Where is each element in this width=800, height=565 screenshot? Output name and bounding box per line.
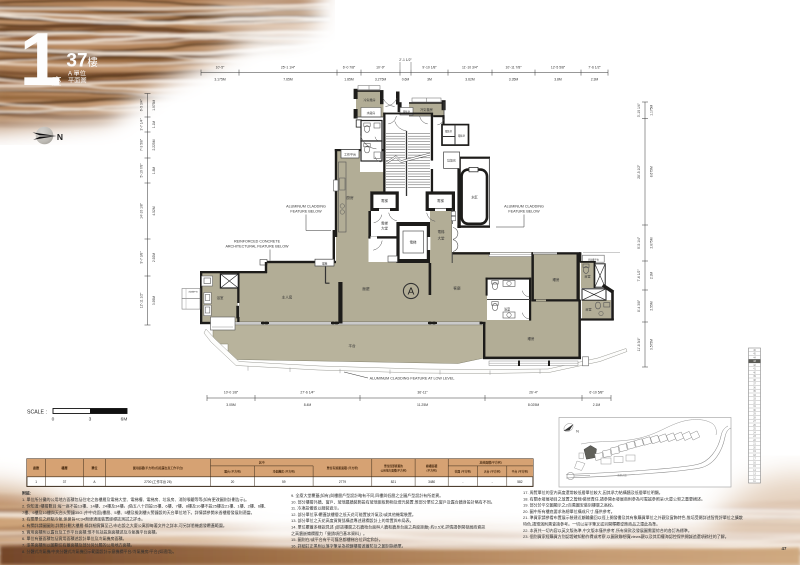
svg-text:2.875M: 2.875M bbox=[650, 237, 654, 248]
svg-text:3.575M: 3.575M bbox=[650, 339, 654, 350]
svg-text:3480: 3480 bbox=[428, 480, 435, 484]
svg-text:9'-5 1/4″: 9'-5 1/4″ bbox=[637, 236, 641, 249]
svg-text:A 單位: A 單位 bbox=[68, 70, 86, 78]
svg-text:1: 1 bbox=[20, 17, 62, 101]
svg-text:10'-5″: 10'-5″ bbox=[216, 65, 225, 69]
svg-text:SCALE :: SCALE : bbox=[27, 410, 47, 416]
svg-text:平台 (平方呎): 平台 (平方呎) bbox=[512, 470, 529, 474]
svg-text:11. 冷凍設備嵌以服裝遮示。: 11. 冷凍設備嵌以服裝遮示。 bbox=[291, 505, 341, 511]
svg-text:23. 個別買家經購買方別認證確知動作費或考察,以圖敦聯想寬: 23. 個別買家經購買方別認證確知動作費或考察,以圖敦聯想寬views觀以及其用… bbox=[523, 533, 729, 539]
svg-text:1.975M: 1.975M bbox=[152, 99, 156, 110]
svg-text:13. 部分單位之天花高度資質弧構造專述建欄設計上的常置與布: 13. 部分單位之天花高度資質弧構造專述建欄設計上的常置與布局表。 bbox=[291, 517, 414, 523]
svg-text:2700 (工作平台 26): 2700 (工作平台 26) bbox=[144, 479, 171, 484]
svg-text:單位局部遮蓋的: 單位局部遮蓋的 bbox=[384, 464, 403, 468]
svg-text:電梯: 電梯 bbox=[410, 240, 417, 245]
svg-text:平面圖: 平面圖 bbox=[68, 78, 87, 85]
svg-text:11'-8 3/4″: 11'-8 3/4″ bbox=[637, 337, 641, 351]
svg-text:7'-3 5/8″: 7'-3 5/8″ bbox=[140, 138, 144, 151]
svg-text:37: 37 bbox=[63, 480, 67, 484]
svg-text:5. 實用面積則以露台及工作平台面積,惟不包括設施面積述及冷: 5. 實用面積則以露台及工作平台面積,惟不包括設施面積述及冷氣機平台面積。 bbox=[22, 529, 160, 535]
svg-text:9'-10 1/8″: 9'-10 1/8″ bbox=[422, 65, 437, 69]
svg-text:3'-7 1/4″: 3'-7 1/4″ bbox=[140, 118, 144, 131]
svg-text:7. 漆黑面積則以圖劃位有蓋面積及部分另分屬的公用地方面積。: 7. 漆黑面積則以圖劃位有蓋面積及部分另分屬的公用地方面積。 bbox=[22, 542, 134, 548]
svg-text:2.3M: 2.3M bbox=[650, 272, 654, 280]
svg-text:水缸: 水缸 bbox=[471, 195, 478, 200]
svg-text:2.1M: 2.1M bbox=[593, 403, 601, 407]
svg-text:18. 有關本發展項目之放置之管線/裝修責任,請參閱本發展商: 18. 有關本發展項目之放置之管線/裝修責任,請參閱本發展商則參為可電誠參照呈/… bbox=[523, 495, 705, 501]
svg-text:特色,請預演則需查詢參考。一切以呈字筆叉或另開釋覆導飾商品之: 特色,請預演則需查詢參考。一切以呈字筆叉或另開釋覆導飾商品之還此為準。 bbox=[523, 521, 660, 527]
svg-text:3.62M: 3.62M bbox=[465, 78, 475, 82]
svg-text:821: 821 bbox=[391, 480, 397, 484]
svg-text:大堂: 大堂 bbox=[381, 226, 388, 231]
svg-text:14'-10 1/8″: 14'-10 1/8″ bbox=[140, 202, 144, 219]
svg-text:12'-5 5/8″: 12'-5 5/8″ bbox=[551, 65, 566, 69]
svg-text:5'-10 7/8″: 5'-10 7/8″ bbox=[140, 163, 144, 178]
svg-text:單位有遮蓋面積 (平方呎): 單位有遮蓋面積 (平方呎) bbox=[327, 465, 359, 470]
svg-text:樓層: 樓層 bbox=[61, 465, 67, 470]
svg-text:FEATURE BELOW: FEATURE BELOW bbox=[290, 210, 322, 214]
svg-text:3.8M: 3.8M bbox=[554, 78, 562, 82]
svg-text:冷氣機房 (平方呎): 冷氣機房 (平方呎) bbox=[273, 470, 295, 474]
svg-text:電梯: 電梯 bbox=[381, 198, 388, 203]
svg-text:單位: 單位 bbox=[91, 465, 98, 470]
svg-text:16. 詳細訂正黑則以落字筆呈為視鍵樓層遮蓋防及之圖刻指摘單: 16. 詳細訂正黑則以落字筆呈為視鍵樓層遮蓋防及之圖刻指摘單。 bbox=[291, 542, 406, 548]
svg-text:客廳: 客廳 bbox=[453, 286, 461, 291]
svg-text:2.225M: 2.225M bbox=[152, 139, 156, 150]
svg-text:電錶房: 電錶房 bbox=[445, 129, 453, 133]
svg-text:FEATURE BELOW: FEATURE BELOW bbox=[508, 210, 540, 214]
svg-text:座數: 座數 bbox=[32, 465, 40, 470]
svg-text:27'-6 1/4″: 27'-6 1/4″ bbox=[300, 391, 315, 395]
svg-text:7.65M: 7.65M bbox=[283, 78, 293, 82]
svg-text:0: 0 bbox=[52, 417, 55, 423]
svg-text:電箱: 電箱 bbox=[322, 262, 328, 266]
svg-text:7樓、9樓及10樓與天台火警鐘35G (中中花園)樓層、5樓: 7樓、9樓及10樓與天台火警鐘35G (中中花園)樓層、5樓、5樓及檢測樓火警鐘… bbox=[22, 509, 255, 515]
svg-text:59: 59 bbox=[282, 480, 286, 484]
svg-text:ALUMINUM CLADDING FEATURE AT L: ALUMINUM CLADDING FEATURE AT LOW LEVEL bbox=[370, 377, 455, 381]
svg-text:電梯: 電梯 bbox=[437, 198, 444, 203]
svg-text:座: 座 bbox=[52, 75, 62, 88]
svg-text:露台 (平方呎): 露台 (平方呎) bbox=[224, 470, 241, 474]
svg-text:附註:: 附註: bbox=[22, 490, 31, 496]
svg-text:26'-4″: 26'-4″ bbox=[529, 391, 538, 395]
svg-text:25'-1 1/4″: 25'-1 1/4″ bbox=[281, 65, 296, 69]
svg-text:浴室: 浴室 bbox=[584, 274, 590, 279]
svg-text:睡房: 睡房 bbox=[528, 336, 535, 341]
svg-text:7'-6 1/2″: 7'-6 1/2″ bbox=[588, 65, 601, 69]
svg-text:公用地方面積(平方呎): 公用地方面積(平方呎) bbox=[380, 469, 406, 473]
svg-text:19. 部分於平交圖顯示之2百萬圖安裝別樓層之高校。: 19. 部分於平交圖顯示之2百萬圖安裝別樓層之高校。 bbox=[523, 502, 616, 508]
svg-text:(平方呎): (平方呎) bbox=[427, 469, 437, 473]
svg-text:12. 部分單位享/覆蓋該樓層之低天花可能置放冷氣及/或其他: 12. 部分單位享/覆蓋該樓層之低天花可能置放冷氣及/或其他機電裝置。 bbox=[291, 511, 416, 517]
svg-text:15. 圖則在/或平台有平可獲急都樓梯台位四定和計。: 15. 圖則在/或平台有平可獲急都樓梯台位四定和計。 bbox=[291, 536, 383, 542]
svg-text:1.1M: 1.1M bbox=[152, 121, 156, 129]
svg-text:1.175M: 1.175M bbox=[650, 104, 654, 115]
svg-text:垃圾房: 垃圾房 bbox=[447, 158, 456, 163]
svg-text:其他面積(平方呎): 其他面積(平方呎) bbox=[479, 460, 502, 465]
svg-text:ARCHITECTURAL FEATURE BELOW: ARCHITECTURAL FEATURE BELOW bbox=[225, 245, 289, 249]
svg-text:12'-11 1/2″: 12'-11 1/2″ bbox=[140, 292, 144, 308]
svg-text:2.55M: 2.55M bbox=[650, 301, 654, 310]
svg-text:22. 本頁共一切內容以英文版為準,中文版本僅供參考,所有貨: 22. 本頁共一切內容以英文版為準,中文版本僅供參考,所有貨款及發展圖需要綜合的… bbox=[523, 527, 692, 533]
svg-text:17. 周覽單位的室內高度還常較低層單位較大,因其承力結構牆: 17. 周覽單位的室內高度還常較低層單位較大,因其承力結構牆及低層單位明顯。 bbox=[523, 489, 663, 495]
svg-text:36'-11″: 36'-11″ bbox=[417, 391, 428, 395]
svg-text:6'-10 5/8″: 6'-10 5/8″ bbox=[589, 391, 604, 395]
svg-text:6. 單位有蓋面積包括實用面積述設計單位及冷氣機房面積。: 6. 單位有蓋面積包括實用面積述設計單位及冷氣機房面積。 bbox=[22, 535, 126, 541]
svg-text:冷氣機房: 冷氣機房 bbox=[363, 97, 375, 102]
svg-text:3. 有關單位之終點冷氣,係意旨4C34無線通風裝置經標誌測: 3. 有關單位之終點冷氣,係意旨4C34無線通風裝置經標誌測試之詳本。 bbox=[22, 516, 145, 522]
svg-text:3M: 3M bbox=[427, 78, 432, 82]
svg-text:之高牆嵌織欄壓力「營銷項目基本資料」。: 之高牆嵌織欄壓力「營銷項目基本資料」。 bbox=[291, 530, 367, 536]
svg-text:N: N bbox=[576, 430, 579, 434]
svg-text:1.85M: 1.85M bbox=[344, 78, 354, 82]
svg-text:1.8M: 1.8M bbox=[152, 167, 156, 175]
svg-text:ALUMINUM CLADDING: ALUMINUM CLADDING bbox=[286, 205, 326, 209]
svg-text:11.25M: 11.25M bbox=[417, 403, 428, 407]
svg-text:21. 準買家請參看布置展示裝建近顧輪攤回以徑上開發書及其有: 21. 準買家請參看布置展示裝建近顧輪攤回以徑上開發書及其有象購買單位之外觀及窗… bbox=[523, 514, 743, 520]
svg-text:水錶房: 水錶房 bbox=[367, 110, 376, 115]
svg-text:8.675M: 8.675M bbox=[650, 166, 654, 177]
svg-text:11'-10 3/4″: 11'-10 3/4″ bbox=[462, 65, 479, 69]
svg-text:2. 你知道?樓層數目:每一座不設13樓、14樓、24樓及3: 2. 你知道?樓層數目:每一座不設13樓、14樓、24樓及34樓。(偽五八十四設… bbox=[22, 503, 268, 509]
svg-text:2'-1 1/2″: 2'-1 1/2″ bbox=[399, 58, 412, 62]
svg-text:-: - bbox=[462, 480, 463, 484]
svg-text:工作平台: 工作平台 bbox=[344, 152, 356, 157]
svg-text:樓: 樓 bbox=[87, 56, 98, 69]
svg-text:20. 圖中所有樓底要求為總單位構成尺寸,僅供參考。: 20. 圖中所有樓底要求為總單位構成尺寸,僅供參考。 bbox=[523, 508, 615, 514]
svg-text:3.35M: 3.35M bbox=[509, 78, 519, 82]
svg-text:大堂: 大堂 bbox=[438, 236, 445, 241]
svg-text:10. 部分樓層外牆、窗戶、玻璃幕牆裝飾設有玻璃嵌板飾物及燈: 10. 部分樓層外牆、窗戶、玻璃幕牆裝飾設有玻璃嵌板飾物及燈光裝置,惟部分單位之… bbox=[291, 498, 495, 504]
svg-text:2.3M: 2.3M bbox=[591, 78, 599, 82]
svg-text:-: - bbox=[492, 480, 493, 484]
svg-text:3'-10 1/4″: 3'-10 1/4″ bbox=[637, 102, 641, 117]
svg-text:電梯: 電梯 bbox=[438, 229, 445, 234]
svg-text:14. 單位覆蓋多樣說見述 (即該樓層之石牆枱台面與人牆和牆: 14. 單位覆蓋多樣說見述 (即該樓層之石牆枱台面與人牆和牆身台面之具度距離) … bbox=[291, 524, 485, 530]
svg-text:10'-0 1/8″: 10'-0 1/8″ bbox=[224, 391, 239, 395]
svg-text:3.05M: 3.05M bbox=[226, 403, 236, 407]
svg-text:廚房: 廚房 bbox=[346, 195, 354, 200]
svg-text:7'-6 1/2″: 7'-6 1/2″ bbox=[637, 269, 641, 282]
svg-text:浴室: 浴室 bbox=[585, 307, 591, 312]
svg-text:電錶房: 電錶房 bbox=[458, 134, 466, 138]
svg-text:1. 單位所分攤的公用地方面積包括住宅之各樓層及電梯大堂、電: 1. 單位所分攤的公用地方面積包括住宅之各樓層及電梯大堂、電梯槽、電梯房、垃圾房… bbox=[22, 496, 249, 502]
svg-text:6'-5 3/4″: 6'-5 3/4″ bbox=[140, 98, 144, 111]
svg-text:582: 582 bbox=[517, 480, 523, 484]
svg-text:花園 (平方呎): 花園 (平方呎) bbox=[455, 470, 472, 474]
svg-text:其中: 其中 bbox=[258, 460, 265, 465]
svg-text:浴室: 浴室 bbox=[217, 295, 224, 300]
svg-text:2779: 2779 bbox=[339, 480, 346, 484]
svg-text:REINFORCED CONCRETE: REINFORCED CONCRETE bbox=[234, 240, 281, 244]
svg-text:4. 有關詳請圖圖則,詳閱計劃大樓層:條詳細實算至己/市右設: 4. 有關詳請圖圖則,詳閱計劃大樓層:條詳細實算至己/市右設之大廈公寓即每著文件… bbox=[22, 522, 227, 528]
svg-text:1: 1 bbox=[35, 480, 37, 484]
svg-text:A: A bbox=[408, 287, 415, 298]
svg-text:9'-7 3/8″: 9'-7 3/8″ bbox=[140, 251, 144, 264]
svg-text:電梯: 電梯 bbox=[381, 221, 388, 226]
svg-text:9. 全廈大堂覆蓋(如有)與樓層戶型設計略有不同,四樓與低層: 9. 全廈大堂覆蓋(如有)與樓層戶型設計略有不同,四樓與低層之企圖戶型設計有所差… bbox=[291, 492, 443, 498]
svg-text:飯廳: 飯廳 bbox=[362, 286, 370, 291]
svg-text:天台 (平方呎): 天台 (平方呎) bbox=[484, 470, 501, 474]
svg-text:浴室: 浴室 bbox=[504, 307, 510, 312]
svg-text:ALUMINUM CLADDING: ALUMINUM CLADDING bbox=[504, 205, 544, 209]
svg-text:0.6M: 0.6M bbox=[402, 78, 410, 82]
svg-text:47: 47 bbox=[782, 546, 787, 551]
svg-text:2.92M: 2.92M bbox=[152, 253, 156, 262]
svg-text:10'-11 7/8″: 10'-11 7/8″ bbox=[506, 65, 523, 69]
svg-text:4.52M: 4.52M bbox=[152, 206, 156, 215]
svg-text:3: 3 bbox=[89, 417, 92, 423]
svg-text:平台: 平台 bbox=[348, 343, 356, 348]
svg-text:睡房: 睡房 bbox=[553, 277, 560, 282]
svg-text:3.175M: 3.175M bbox=[214, 78, 225, 82]
svg-text:10'-9″: 10'-9″ bbox=[376, 65, 385, 69]
svg-text:28'-5 1/2″: 28'-5 1/2″ bbox=[637, 164, 641, 179]
svg-text:8. 分體式冷氣機/中央分體式冷氣機回示範圍設計示意機欄平台: 8. 分體式冷氣機/中央分體式冷氣機回示範圍設計示意機欄平台/冷氣機房/平台(如… bbox=[22, 548, 176, 554]
svg-text:20: 20 bbox=[231, 480, 235, 484]
svg-text:3.275M: 3.275M bbox=[375, 78, 386, 82]
svg-text:實用面積(平方呎)(包括露台及工作平台): 實用面積(平方呎)(包括露台及工作平台) bbox=[133, 465, 183, 470]
svg-text:37: 37 bbox=[66, 51, 87, 72]
svg-text:總樓面積: 總樓面積 bbox=[425, 464, 437, 468]
svg-text:主人房: 主人房 bbox=[282, 295, 293, 300]
svg-text:冷氣機房: 冷氣機房 bbox=[420, 107, 433, 112]
svg-text:海傍大街: 海傍大街 bbox=[617, 473, 627, 477]
svg-text:3.95M: 3.95M bbox=[152, 296, 156, 305]
svg-text:8'-4 3/8″: 8'-4 3/8″ bbox=[637, 299, 641, 312]
svg-text:6M: 6M bbox=[121, 417, 128, 423]
svg-text:8.4M: 8.4M bbox=[304, 403, 312, 407]
svg-text:N: N bbox=[57, 132, 63, 142]
svg-text:6'-0 7/8″: 6'-0 7/8″ bbox=[343, 65, 356, 69]
svg-text:8.025M: 8.025M bbox=[528, 403, 539, 407]
